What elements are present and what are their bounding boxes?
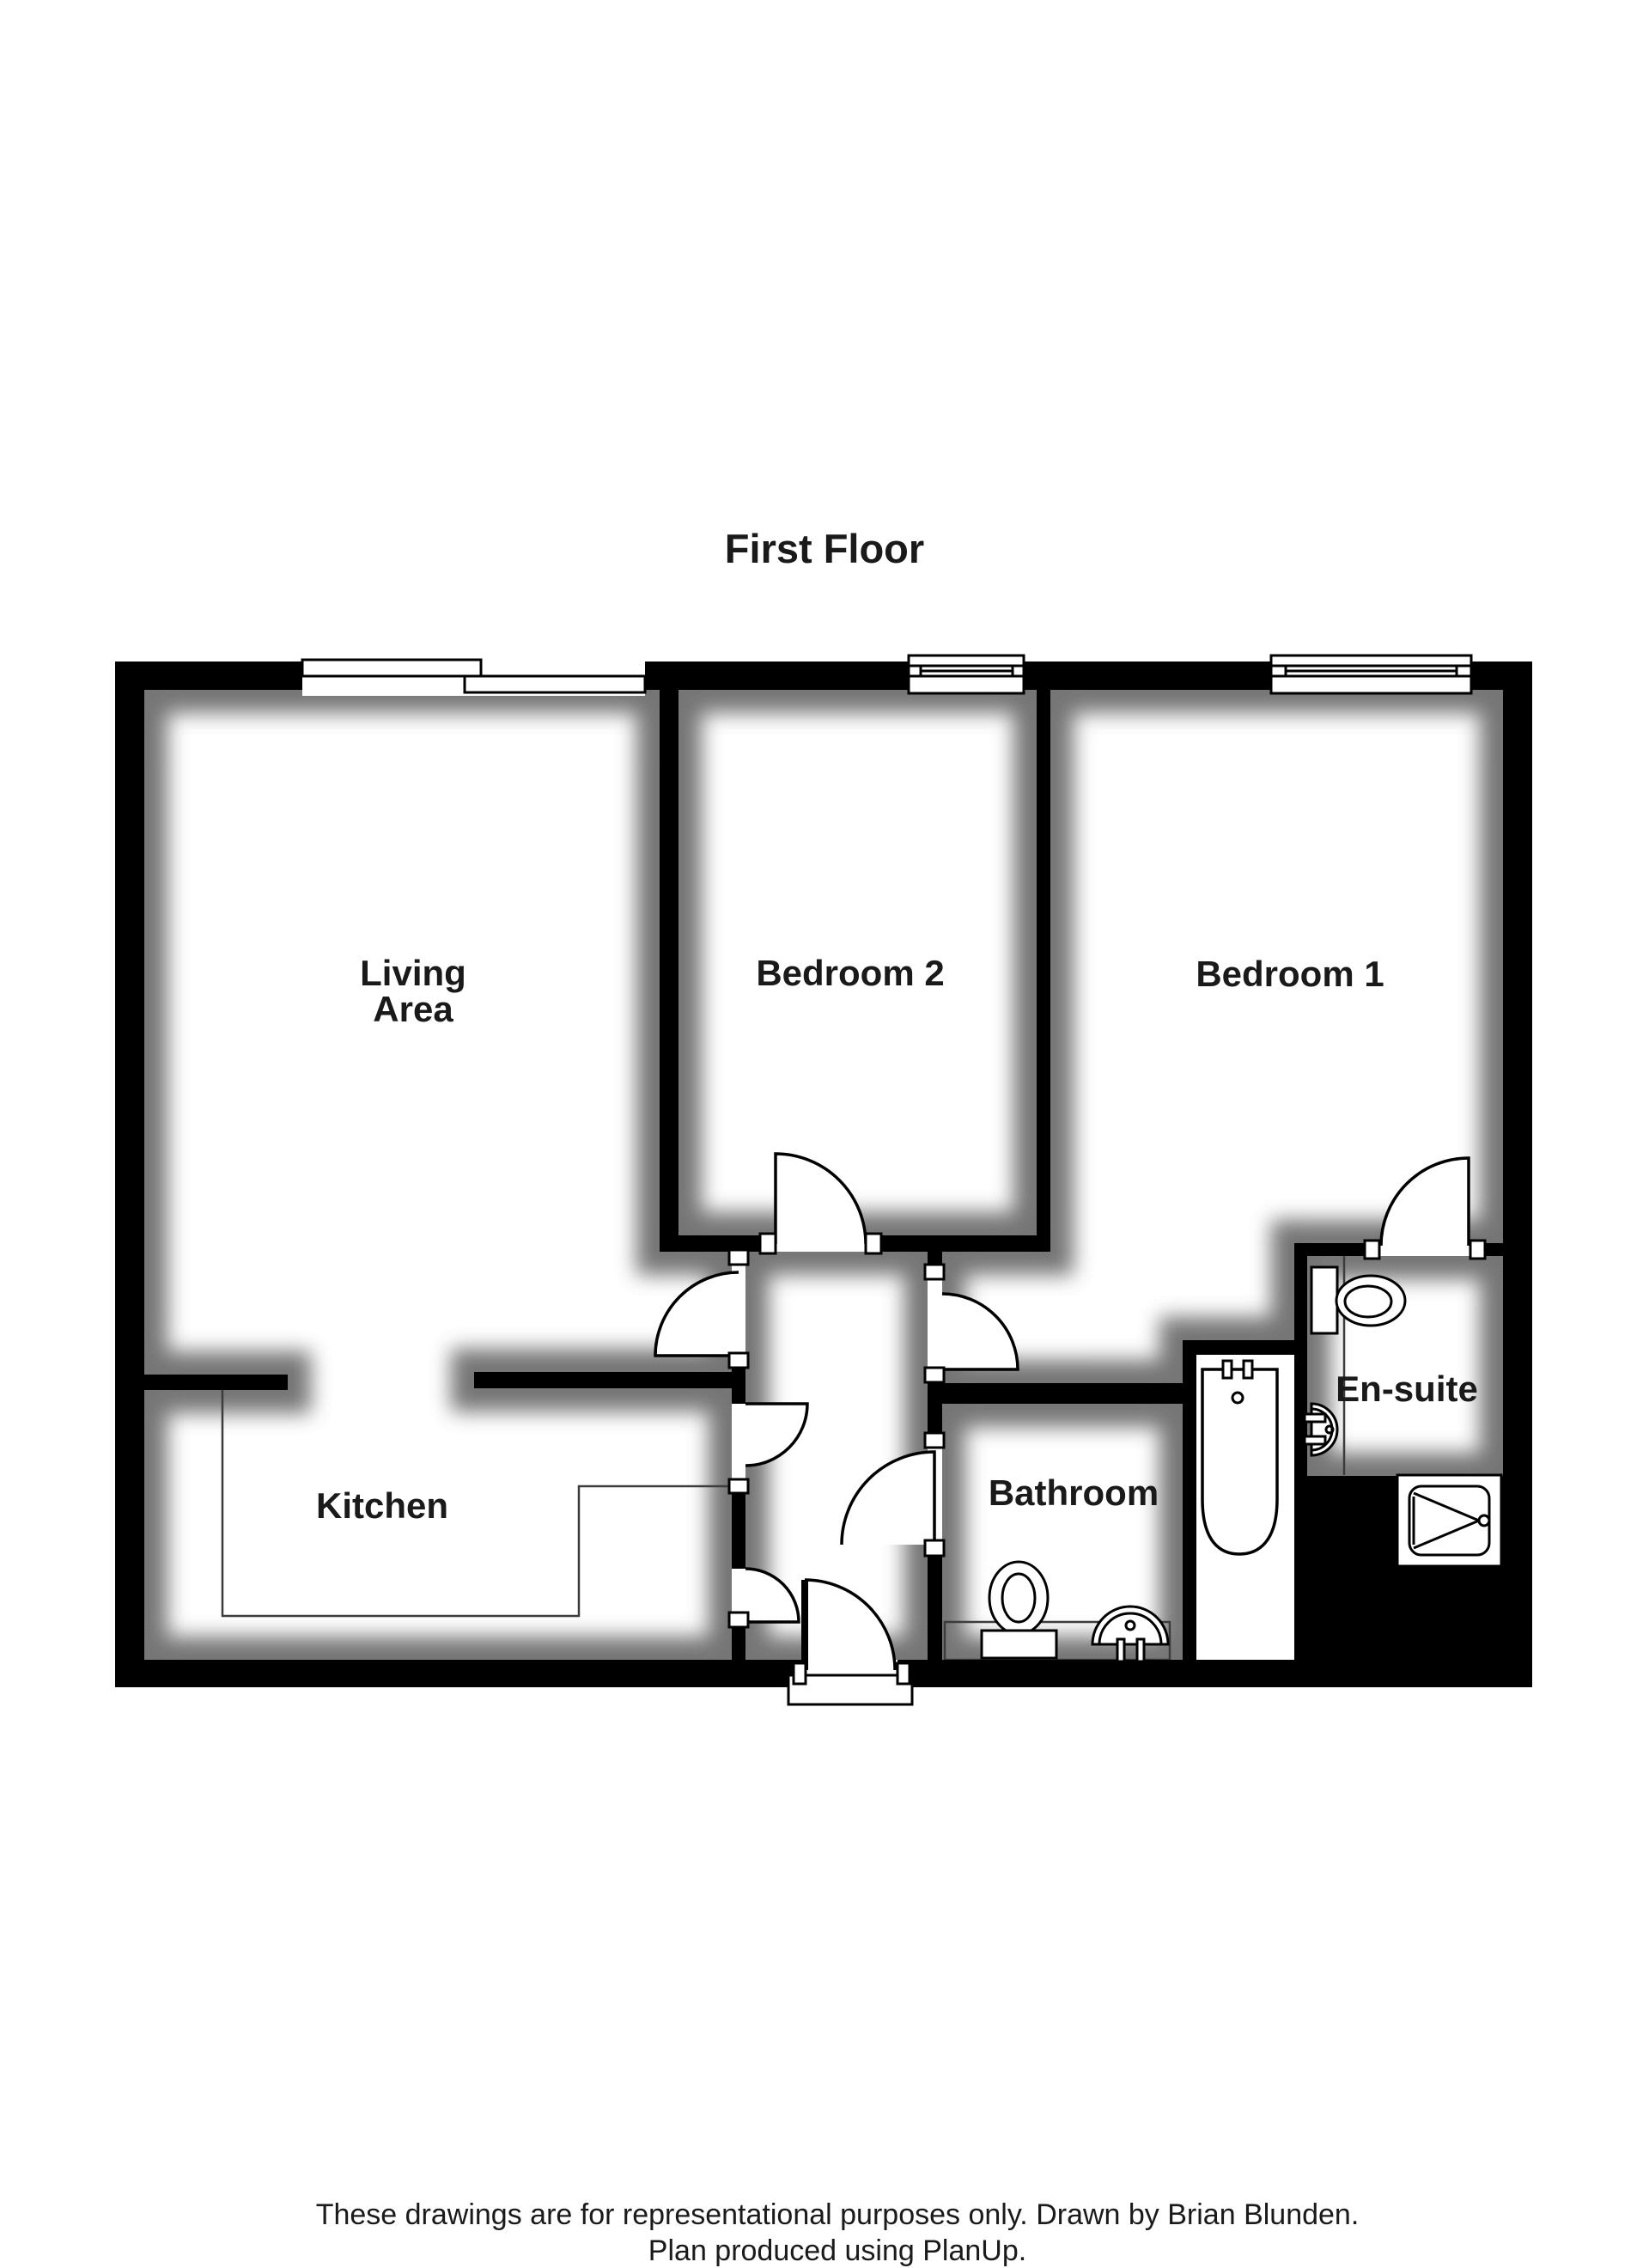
wall-bathniche-top [1183, 1340, 1307, 1355]
label-living-line1: Living [360, 953, 466, 993]
window-bedroom1 [1271, 655, 1471, 693]
floorplan-canvas: First Floor [0, 0, 1649, 2268]
wall-hall-left-seg2 [732, 1493, 745, 1569]
window-bedroom2 [909, 655, 1024, 693]
wall-hall-left-seg3 [732, 1627, 745, 1660]
shower-symbol [1397, 1475, 1501, 1566]
wall-exterior-left [115, 661, 144, 1687]
footer-line1: These drawings are for representational … [316, 2198, 1360, 2231]
wall-hall-right-seg [928, 1556, 942, 1660]
wall-bathniche-left [1183, 1340, 1196, 1660]
wall-living-bottom [474, 1372, 732, 1388]
wall-kitchen-stub [144, 1375, 288, 1390]
wall-living-bedroom2 [660, 661, 678, 1252]
page-title: First Floor [725, 526, 924, 571]
wall-bathroom-top [928, 1383, 1183, 1404]
label-bathroom: Bathroom [989, 1472, 1159, 1513]
label-bedroom2: Bedroom 2 [756, 953, 944, 993]
label-kitchen: Kitchen [316, 1485, 448, 1526]
wall-hall-right-stub3 [928, 1404, 942, 1433]
bath-niche [1196, 1355, 1294, 1660]
wall-bedroom2-bedroom1 [1037, 661, 1050, 1252]
wall-hall-right-stub1 [928, 1252, 942, 1265]
front-door-threshold [788, 1675, 912, 1704]
wall-hall-left-seg1 [732, 1368, 745, 1404]
label-ensuite: En-suite [1336, 1369, 1478, 1409]
label-living-line2: Area [373, 989, 453, 1029]
window-living [302, 655, 645, 696]
label-bedroom1: Bedroom 1 [1196, 954, 1384, 994]
floorplan-page: First Floor [0, 0, 1649, 2268]
footer: These drawings are for representational … [316, 2198, 1360, 2267]
footer-line2: Plan produced using PlanUp. [648, 2234, 1026, 2267]
